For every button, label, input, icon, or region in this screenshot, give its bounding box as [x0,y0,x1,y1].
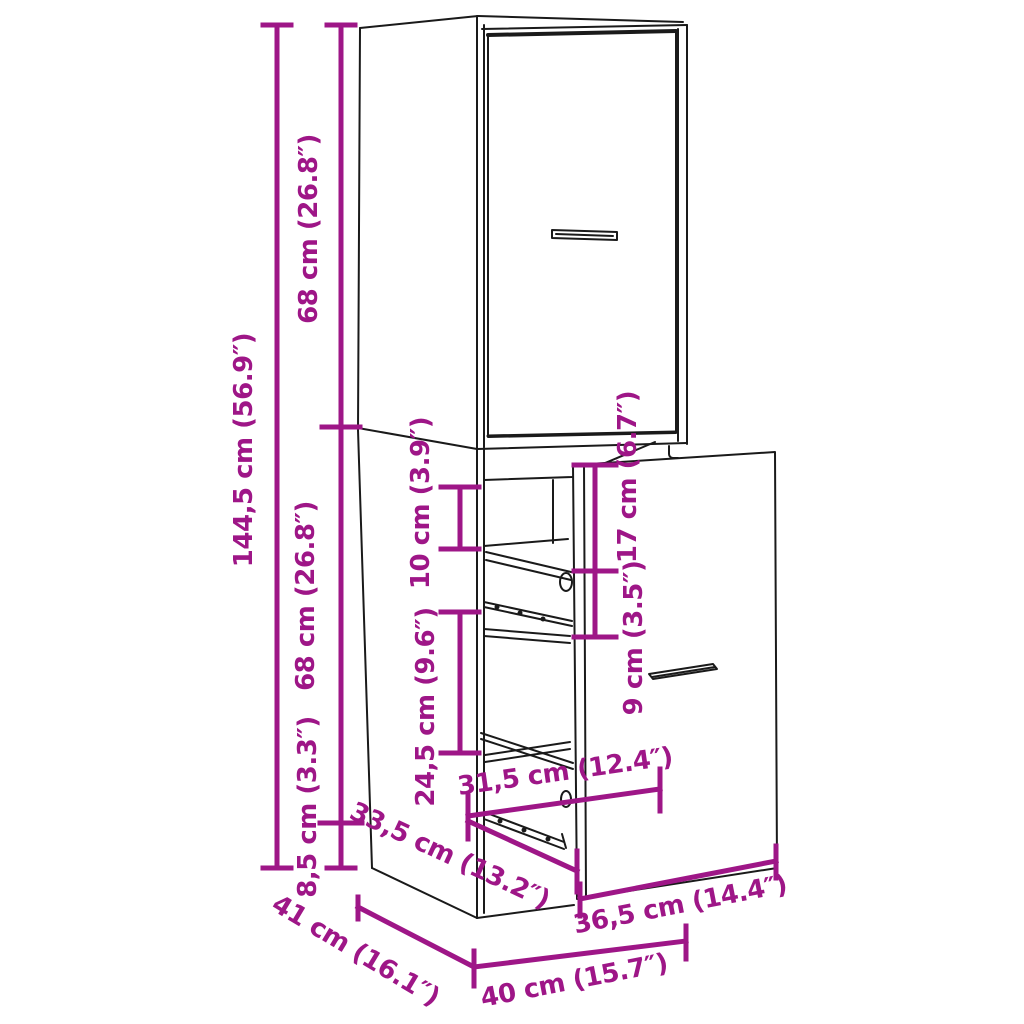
label-lower-section-height: 68 cm (26.8″) [291,501,321,691]
label-pullout-depth: 33,5 cm (13.2″) [345,797,554,916]
diagram-canvas: 144,5 cm (56.9″) 68 cm (26.8″) 68 cm (26… [0,0,1024,1024]
drawer-side-hole [560,573,572,591]
door-handle [552,230,617,240]
label-middle-compartment: 24,5 cm (9.6″) [411,607,441,806]
height-segments-dimension [320,25,362,868]
label-cabinet-width: 40 cm (15.7″) [478,948,670,1014]
middle-compartment-dimension [441,612,479,753]
cabinet-dimension-diagram: 144,5 cm (56.9″) 68 cm (26.8″) 68 cm (26… [0,0,1024,1024]
hinge-bracket [669,446,678,458]
upper-door [488,31,678,458]
label-top-shelf-gap: 10 cm (3.9″) [406,417,436,589]
label-drawer-top-height: 17 cm (6.7″) [613,391,643,563]
pullout-drawer-front [573,452,777,899]
top-shelf-gap-dimension [441,487,479,549]
label-upper-section-height: 68 cm (26.8″) [294,134,324,324]
label-drawer-inner-height: 9 cm (3.5″) [619,561,649,716]
extended-drawer-rails [484,812,566,849]
total-height-dimension [263,25,291,868]
upper-drawer-rails [484,602,572,643]
label-plinth-height: 8,5 cm (3.3″) [293,716,323,898]
label-total-height: 144,5 cm (56.9″) [229,333,259,567]
